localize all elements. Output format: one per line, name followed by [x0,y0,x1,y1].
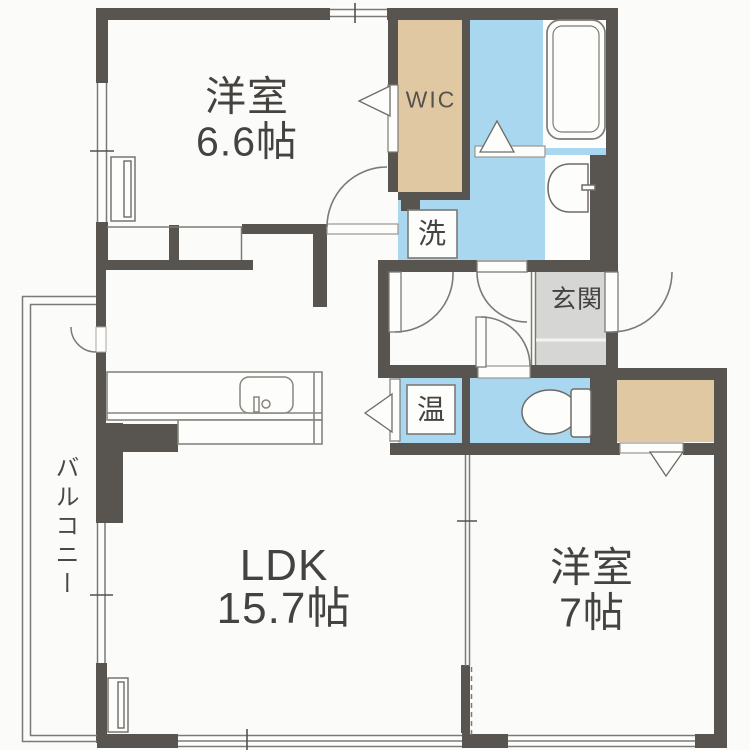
wall [378,260,477,272]
door-triangle-icon [650,452,683,476]
window-top [330,6,387,21]
toilet-icon [522,389,591,437]
wall [97,8,330,20]
hall-ldk-door [389,272,453,332]
balcony-door [71,327,106,352]
wall [462,378,470,443]
door-arc-icon [477,272,527,322]
door-arc-icon [395,272,453,332]
toilet-door [476,317,530,378]
closet-floor [617,380,714,442]
wall [123,424,178,452]
balcony-label: バルコニー [52,455,76,600]
water-heater-door [365,379,400,441]
washroom-floor [470,155,545,260]
floorplan-drawing [0,0,750,750]
bedroom2-size-label: 7帖 [559,593,625,634]
wall [388,152,398,192]
washroom-door [477,261,527,322]
closet-door [620,443,683,476]
wall [462,13,470,200]
wall [378,365,478,378]
wall [606,332,618,368]
wall [590,155,618,260]
wall [527,260,618,272]
door-arc-icon [612,272,672,332]
ldk-size-label: 15.7帖 [217,587,352,631]
wall [378,272,390,368]
washbasin-icon [548,164,595,212]
wall [96,352,106,423]
wall [96,663,107,743]
door-arc-icon [71,327,96,352]
wall [107,260,253,270]
wall [96,222,108,270]
wall [398,192,470,200]
wall [97,734,178,748]
bedroom1-name-label: 洋室 [205,77,289,118]
wall [169,225,179,265]
wall [388,13,398,85]
wall [714,368,727,748]
wall [96,423,123,523]
window-bedroom1-left [95,83,109,222]
wall [96,270,106,327]
wall [470,8,618,20]
ldk-name-label: LDK [240,544,329,588]
wall [96,8,108,83]
wall [683,443,714,455]
bedroom1-size-label: 6.6帖 [196,122,298,163]
wic-door [359,85,398,152]
entrance-label: 玄関 [551,288,603,313]
bedroom2-name-label: 洋室 [550,548,634,589]
laundry-label: 洗 [418,220,446,248]
water-heater-label: 温 [417,396,445,424]
door-arc-icon [481,317,530,366]
door-arc-icon [327,167,387,227]
bedroom1-door [327,167,398,234]
bathtub-icon [547,20,605,139]
entrance-door [605,272,672,332]
wall [461,665,470,738]
wall [242,224,327,234]
shutter-box-ldk [108,678,128,732]
wall [590,368,617,455]
window-ldk-left [95,523,108,663]
wall [390,443,620,455]
wall [387,8,470,20]
wic-label: WIC [406,89,457,112]
door-triangle-icon [365,394,392,432]
window-bedroom2-bottom [508,733,695,749]
wall [608,368,727,380]
door-triangle-icon [359,86,390,116]
wall [313,234,327,307]
kitchen-sink-icon [240,377,293,413]
floorplan: 洋室 6.6帖 WIC 洗 温 玄関 LDK 15.7帖 洋室 7帖 バルコニー [0,0,750,750]
window-ldk-bottom [178,733,462,749]
shutter-box-bedroom1 [111,157,135,221]
